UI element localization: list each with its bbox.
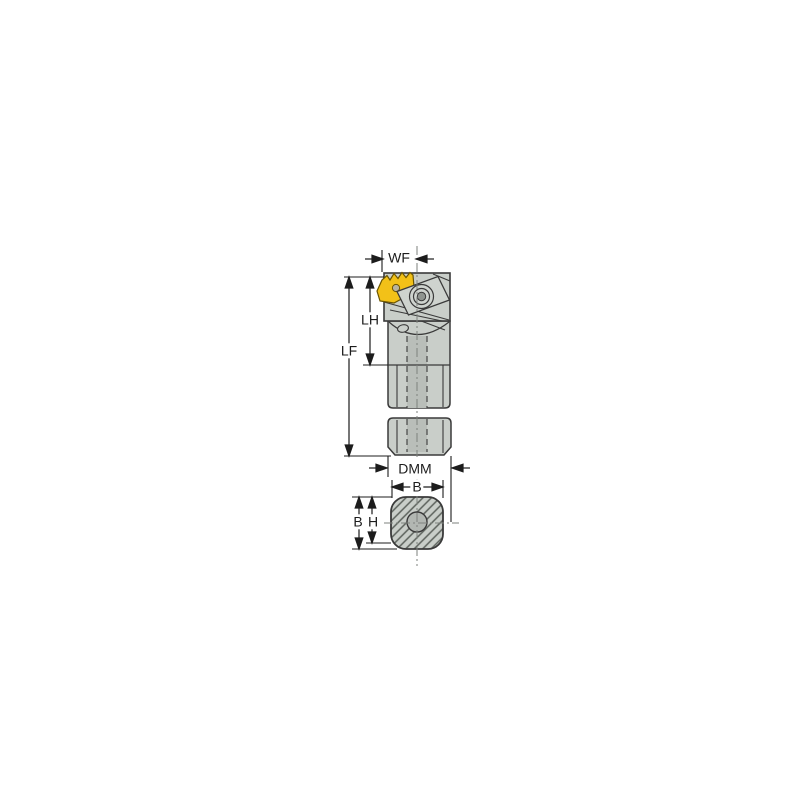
technical-drawing-page: WF LH LF DMM B B H bbox=[0, 0, 800, 800]
dim-label-h-side: H bbox=[366, 514, 380, 529]
dim-label-b-top: B bbox=[410, 479, 423, 494]
dim-label-dmm: DMM bbox=[396, 461, 433, 476]
clamp-screw-icon bbox=[410, 285, 434, 309]
dim-label-lh: LH bbox=[359, 312, 381, 327]
dim-label-b-side: B bbox=[351, 514, 364, 529]
dim-label-wf: WF bbox=[386, 250, 412, 265]
tool-side-view bbox=[377, 273, 451, 456]
tool-dimension-drawing-canvas bbox=[0, 0, 800, 800]
dim-lf bbox=[345, 277, 353, 456]
dim-label-lf: LF bbox=[339, 343, 359, 358]
